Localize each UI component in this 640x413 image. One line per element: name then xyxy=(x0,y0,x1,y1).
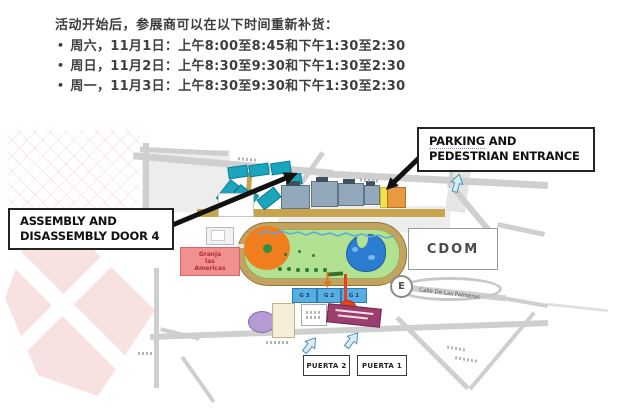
callout-parking-rest: AND xyxy=(485,134,516,148)
callout-parking-word: PARKING xyxy=(429,134,485,149)
orange-arrowhead-icon xyxy=(324,281,332,288)
bullet-icon: • xyxy=(57,59,64,72)
entrance-arrow-icon xyxy=(300,334,321,356)
entrance-arrow-icon xyxy=(342,329,363,351)
callout-parking-line1: PARKING AND xyxy=(429,134,593,149)
document-page: 活动开始后，参展商可以在以下时间重新补货： •周六，11月1日：上午8:00至8… xyxy=(0,0,640,413)
callout-parking: PARKING AND PEDESTRIAN ENTRANCE xyxy=(417,127,595,172)
bullet-icon: • xyxy=(57,79,64,92)
notice-item: •周日，11月2日：上午8:30至9:30和下午1:30至2:30 xyxy=(57,55,405,74)
notice-item-text: 周日，11月2日：上午8:30至9:30和下午1:30至2:30 xyxy=(70,59,405,74)
venue-map: Granja las Americas CDOM E Calle De Las … xyxy=(0,108,640,413)
callout-parking-line2: PEDESTRIAN ENTRANCE xyxy=(429,149,593,164)
notice-item-text: 周六，11月1日：上午8:00至8:45和下午1:30至2:30 xyxy=(70,39,405,54)
stream xyxy=(258,231,394,238)
notice-item: •周一，11月3日：上午8:30至9:30和下午1:30至2:30 xyxy=(57,75,405,94)
callout-assembly: ASSEMBLY AND DISASSEMBLY DOOR 4 xyxy=(8,208,174,250)
notice-title: 活动开始后，参展商可以在以下时间重新补货： xyxy=(55,14,339,33)
callout-assembly-line1: ASSEMBLY AND xyxy=(20,214,172,229)
assembly-arrow-line xyxy=(170,178,286,226)
notice-item-text: 周一，11月3日：上午8:30至9:30和下午1:30至2:30 xyxy=(70,79,405,94)
callout-assembly-line2: DISASSEMBLY DOOR 4 xyxy=(20,229,172,244)
notice-item: •周六，11月1日：上午8:00至8:45和下午1:30至2:30 xyxy=(57,35,405,54)
entrance-arrow-icon xyxy=(449,173,465,193)
bullet-icon: • xyxy=(57,39,64,52)
parking-arrow-line xyxy=(392,157,420,184)
